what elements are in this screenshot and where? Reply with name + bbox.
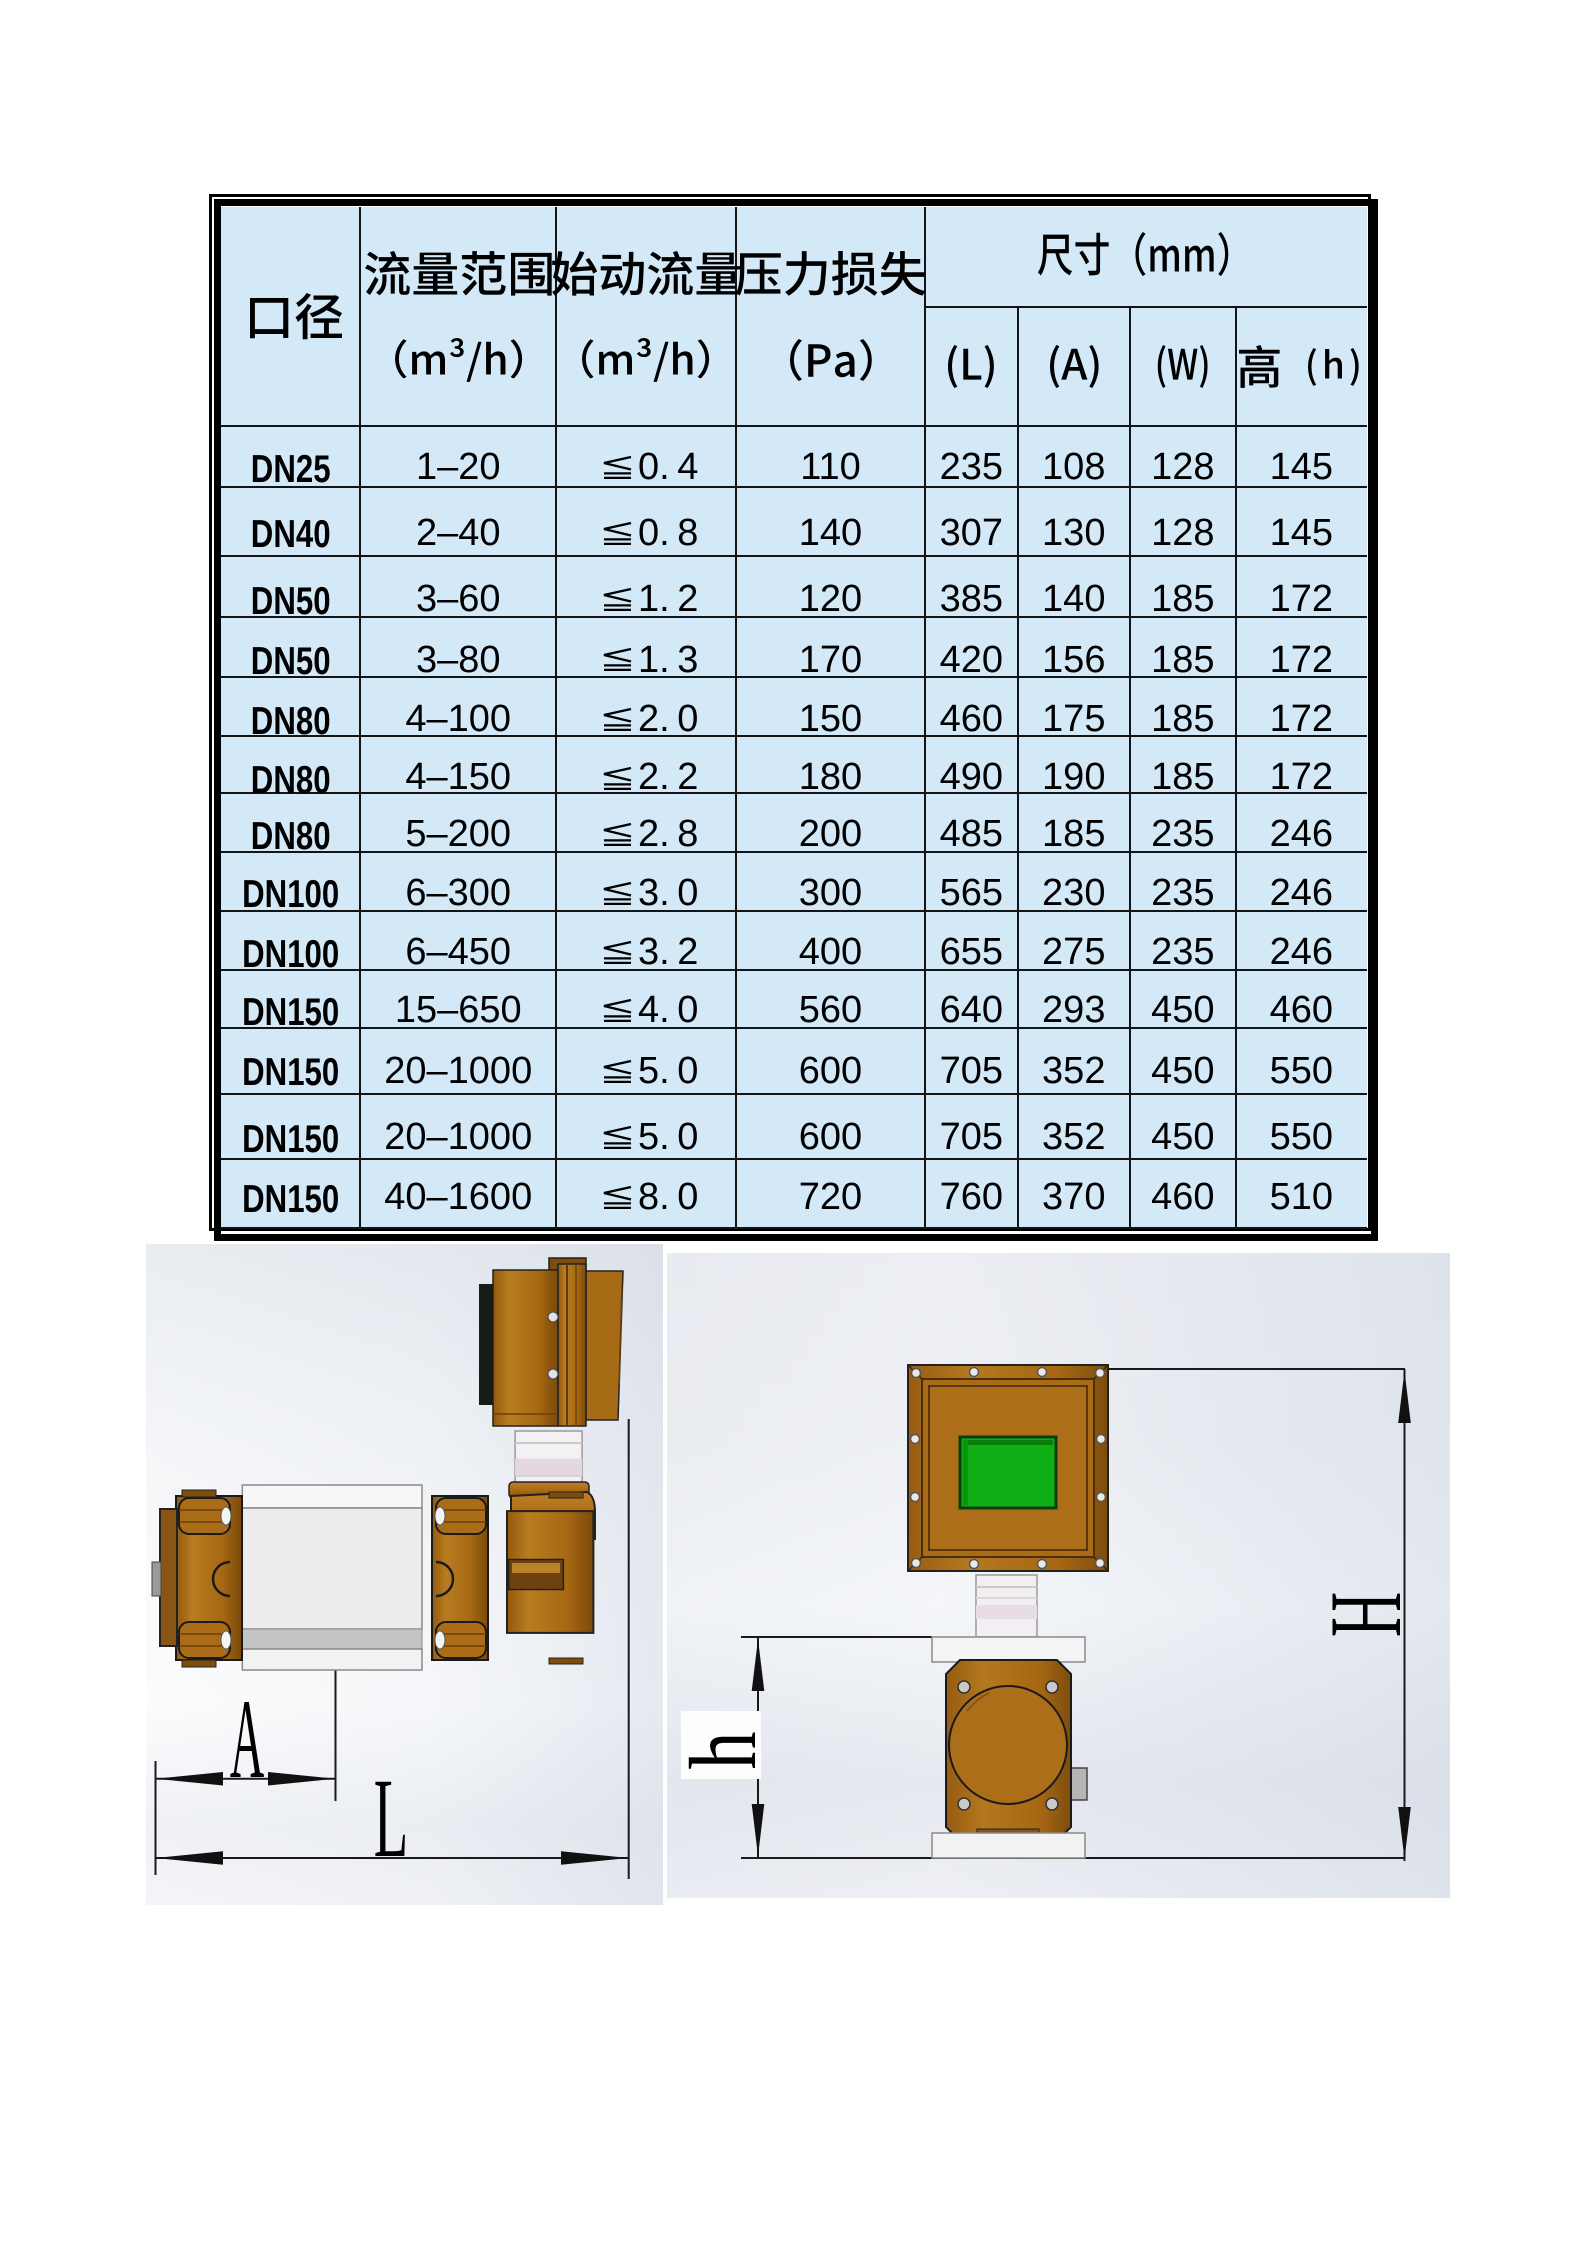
svg-text:A: A: [230, 1677, 264, 1802]
svg-text:h: h: [670, 1731, 776, 1769]
svg-text:H: H: [1309, 1592, 1422, 1637]
svg-text:L: L: [374, 1756, 409, 1881]
